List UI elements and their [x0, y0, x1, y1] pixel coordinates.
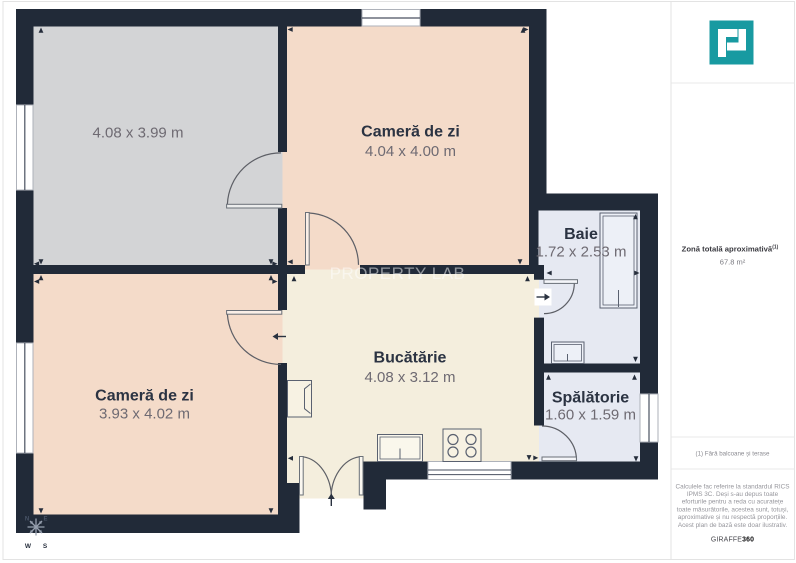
- svg-text:Cameră de zi: Cameră de zi: [95, 388, 194, 405]
- svg-text:3.93 x 4.02 m: 3.93 x 4.02 m: [99, 406, 190, 423]
- svg-text:Calculele fac referire la stan: Calculele fac referire la standardul RIC…: [675, 483, 789, 490]
- svg-text:toate măsurătorile, acestea su: toate măsurătorile, acestea sunt, totuși…: [677, 506, 789, 513]
- svg-text:(1) Fără balcoane și terase: (1) Fără balcoane și terase: [696, 451, 771, 458]
- svg-text:Bucătărie: Bucătărie: [374, 349, 447, 366]
- svg-text:Cameră de zi: Cameră de zi: [361, 124, 460, 141]
- svg-text:PROPERTY LAB: PROPERTY LAB: [330, 264, 466, 283]
- svg-text:GIRAFFE360: GIRAFFE360: [711, 537, 754, 544]
- svg-text:4.08 x 3.12 m: 4.08 x 3.12 m: [365, 369, 456, 386]
- svg-text:E: E: [43, 517, 47, 523]
- svg-text:aproximative și nu respectă pr: aproximative și nu respectă proporțiile.: [678, 514, 788, 521]
- svg-text:eforturile pentru a reda cu ac: eforturile pentru a reda cu acuratețe: [682, 499, 784, 506]
- svg-text:4.08 x 3.99 m: 4.08 x 3.99 m: [93, 125, 184, 142]
- svg-text:67.8 m²: 67.8 m²: [720, 258, 746, 267]
- svg-text:1.60 x 1.59 m: 1.60 x 1.59 m: [545, 407, 636, 424]
- svg-text:Acest plan de bază este doar i: Acest plan de bază este doar ilustrativ.: [678, 522, 788, 529]
- svg-text:Baie: Baie: [564, 226, 598, 243]
- svg-text:N: N: [25, 517, 29, 523]
- svg-text:S: S: [43, 543, 48, 550]
- svg-text:1.72 x 2.53 m: 1.72 x 2.53 m: [536, 244, 627, 261]
- svg-text:IPMS 3C. Deși s-au depus toate: IPMS 3C. Deși s-au depus toate: [687, 491, 779, 498]
- svg-text:W: W: [25, 543, 32, 550]
- svg-text:4.04 x 4.00 m: 4.04 x 4.00 m: [365, 143, 456, 160]
- svg-text:Spălătorie: Spălătorie: [552, 390, 629, 407]
- svg-text:Zonă totală aproximativă(1): Zonă totală aproximativă(1): [682, 245, 779, 254]
